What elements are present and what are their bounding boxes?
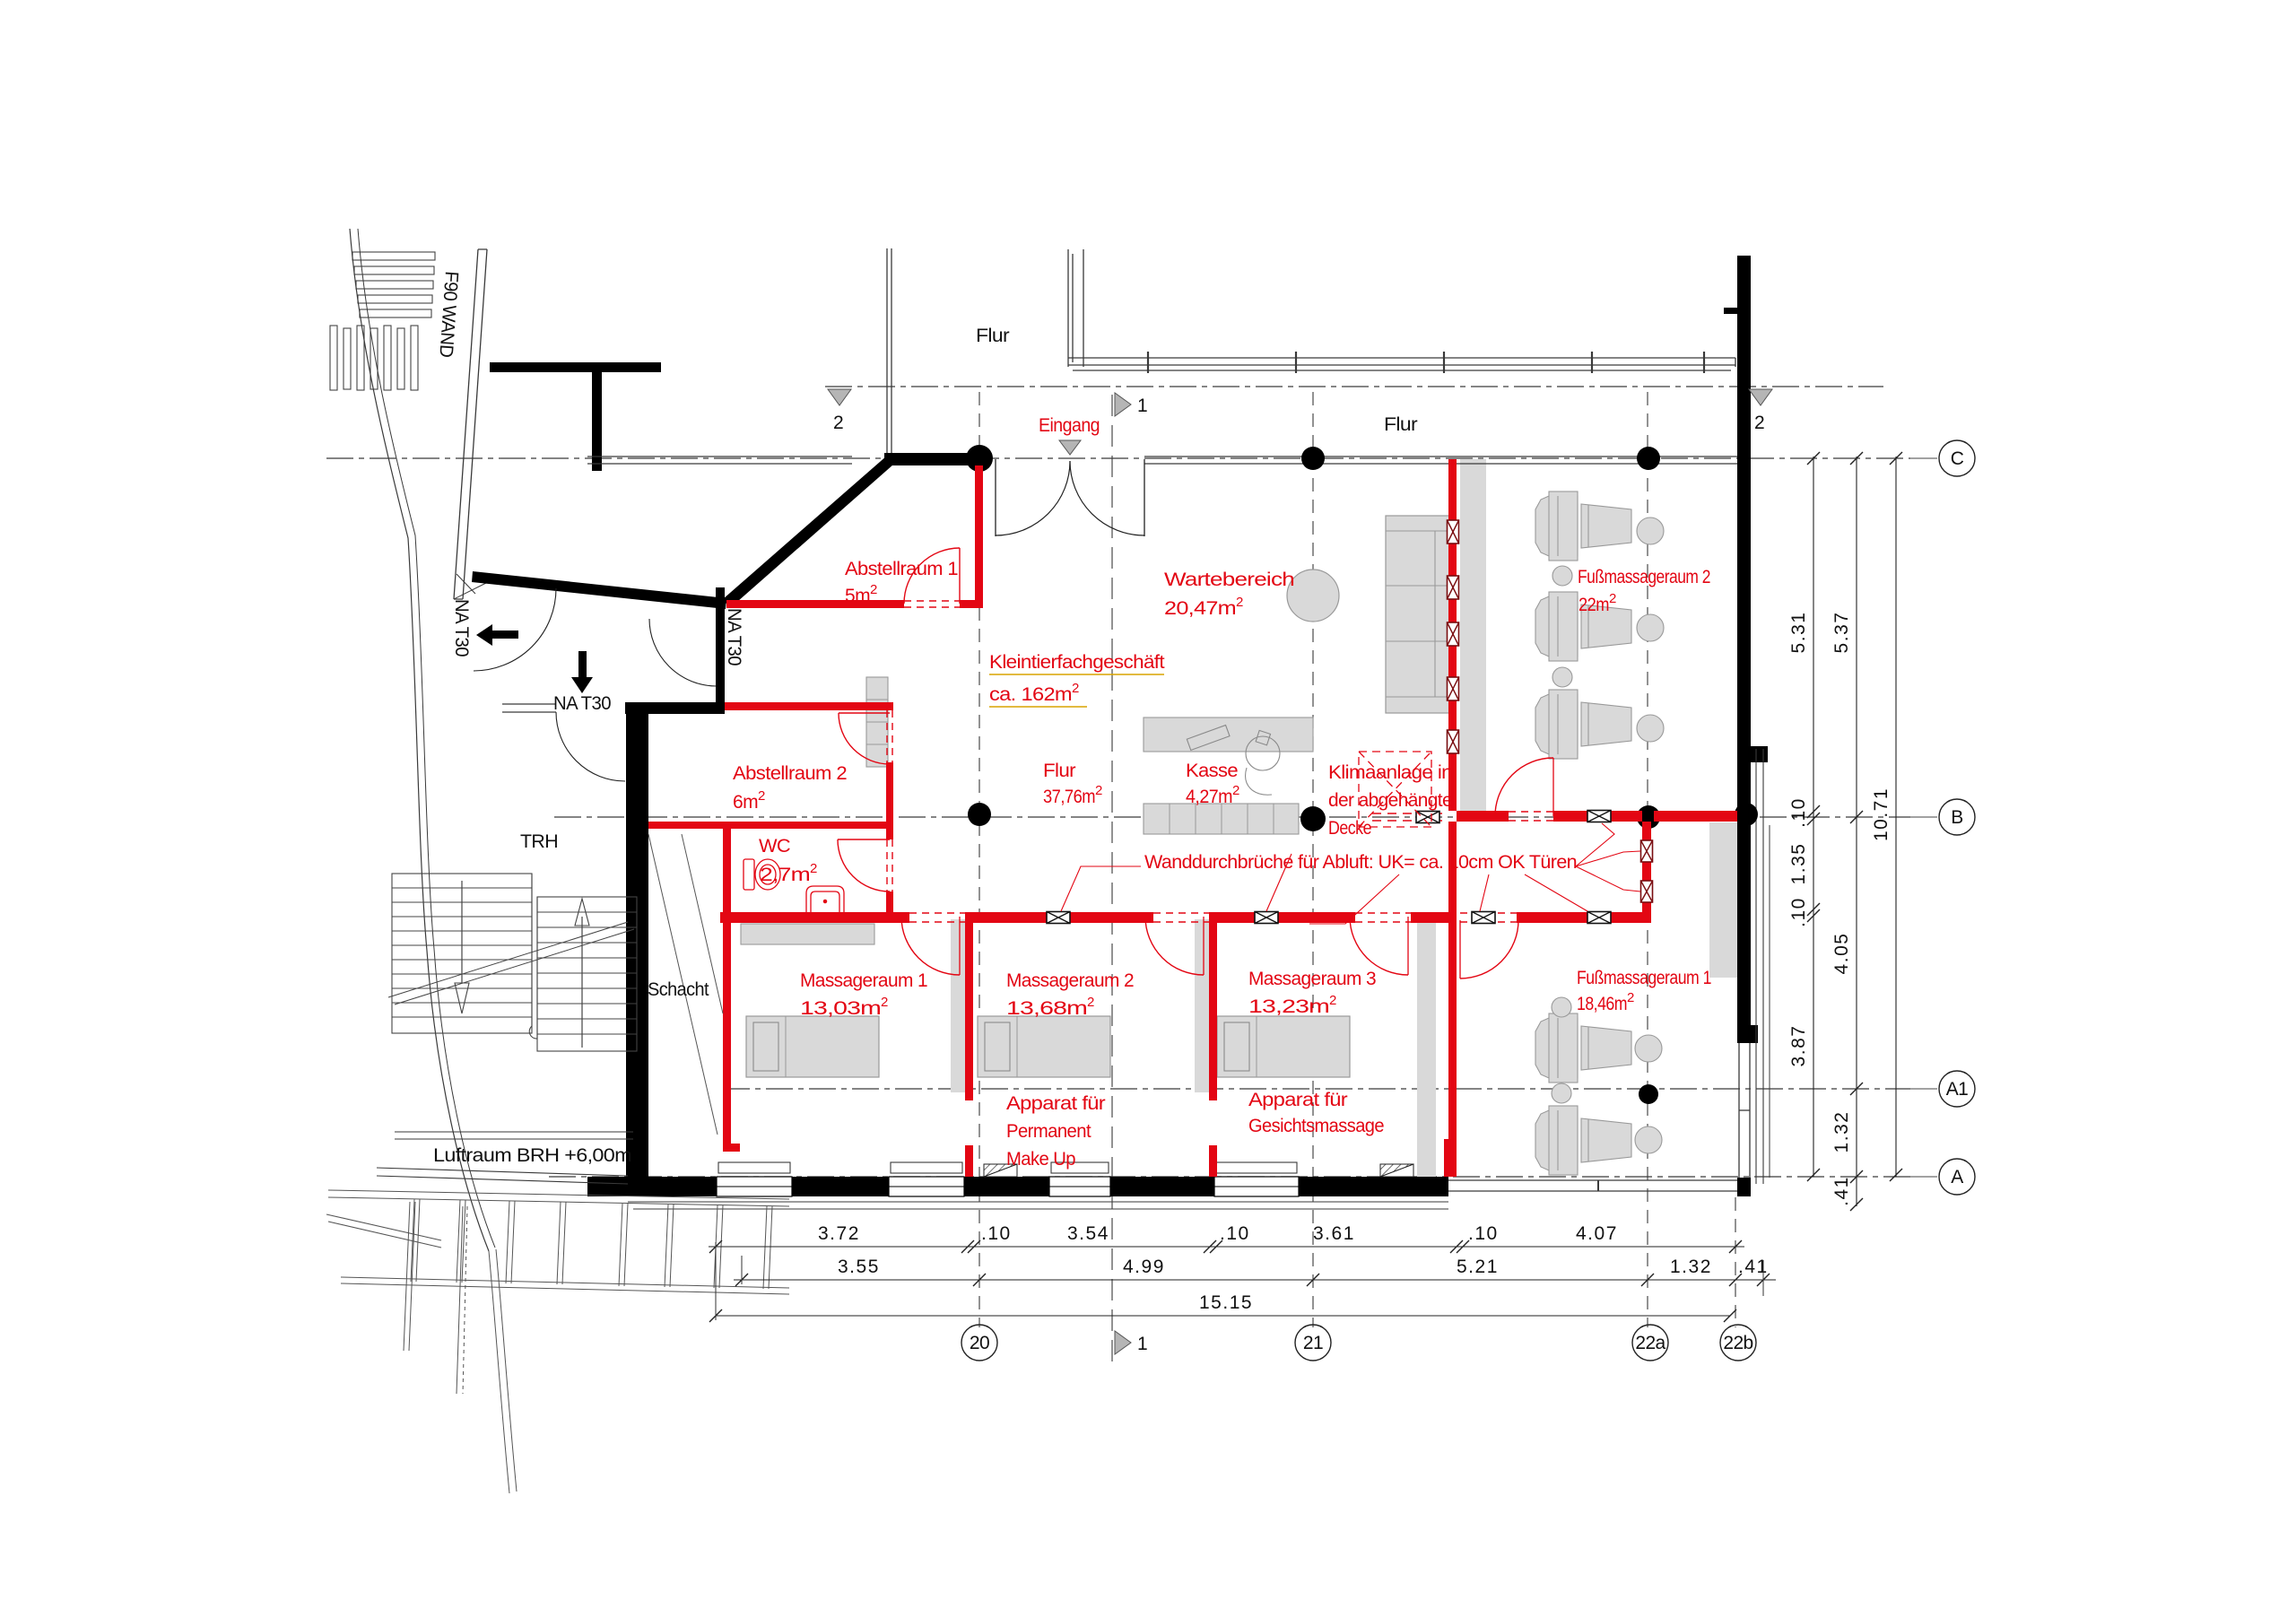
svg-text:21: 21 xyxy=(1303,1333,1323,1353)
svg-text:1: 1 xyxy=(1137,1334,1147,1354)
svg-text:2: 2 xyxy=(1754,413,1764,433)
svg-text:Flur: Flur xyxy=(1384,414,1418,435)
svg-text:4,27m2: 4,27m2 xyxy=(1186,783,1239,807)
svg-text:15.15: 15.15 xyxy=(1199,1292,1253,1313)
svg-text:Wartebereich: Wartebereich xyxy=(1164,570,1294,590)
svg-text:Decke: Decke xyxy=(1328,818,1371,839)
svg-text:C: C xyxy=(1951,448,1964,469)
svg-text:4.99: 4.99 xyxy=(1123,1257,1165,1277)
svg-text:3.72: 3.72 xyxy=(818,1223,860,1244)
svg-text:Flur: Flur xyxy=(1043,761,1076,781)
svg-text:der abgehängte: der abgehängte xyxy=(1328,790,1452,811)
svg-text:Apparat für: Apparat für xyxy=(1006,1093,1106,1114)
svg-text:Apparat für: Apparat für xyxy=(1248,1090,1348,1110)
svg-text:22b: 22b xyxy=(1723,1333,1752,1353)
svg-text:WC: WC xyxy=(759,836,790,857)
svg-text:1: 1 xyxy=(1137,396,1147,416)
svg-text:NA T30: NA T30 xyxy=(451,599,472,657)
svg-text:5.31: 5.31 xyxy=(1788,612,1809,654)
svg-text:37,76m2: 37,76m2 xyxy=(1043,783,1102,807)
svg-text:Kleintierfachgeschäft: Kleintierfachgeschäft xyxy=(989,652,1165,673)
svg-text:TRH: TRH xyxy=(520,831,558,852)
svg-text:2: 2 xyxy=(833,413,843,433)
svg-text:Permanent: Permanent xyxy=(1006,1121,1091,1142)
svg-text:18,46m2: 18,46m2 xyxy=(1577,990,1634,1014)
svg-text:.10: .10 xyxy=(1468,1223,1499,1244)
svg-text:Fußmassageraum 2: Fußmassageraum 2 xyxy=(1578,567,1710,587)
svg-text:A1: A1 xyxy=(1946,1079,1969,1100)
svg-text:4.07: 4.07 xyxy=(1576,1223,1618,1244)
svg-text:NA T30: NA T30 xyxy=(553,693,611,714)
svg-text:Luftraum BRH +6,00m: Luftraum BRH +6,00m xyxy=(433,1145,631,1166)
svg-text:13,23m2: 13,23m2 xyxy=(1248,993,1336,1017)
svg-text:Kasse: Kasse xyxy=(1186,761,1238,781)
svg-text:4.05: 4.05 xyxy=(1831,933,1852,975)
svg-text:1.32: 1.32 xyxy=(1670,1257,1712,1277)
svg-text:Massageraum 3: Massageraum 3 xyxy=(1248,969,1376,989)
svg-text:1.35: 1.35 xyxy=(1788,843,1809,885)
svg-text:2,7m2: 2,7m2 xyxy=(760,861,817,885)
svg-text:1.32: 1.32 xyxy=(1831,1111,1852,1153)
svg-text:Gesichtsmassage: Gesichtsmassage xyxy=(1248,1116,1384,1136)
svg-text:Make Up: Make Up xyxy=(1006,1149,1075,1170)
svg-text:20,47m2: 20,47m2 xyxy=(1164,595,1243,619)
svg-text:Massageraum 2: Massageraum 2 xyxy=(1006,970,1134,991)
svg-text:13,68m2: 13,68m2 xyxy=(1006,995,1094,1019)
svg-text:B: B xyxy=(1951,807,1962,828)
svg-text:Flur: Flur xyxy=(976,326,1010,346)
svg-text:Schacht: Schacht xyxy=(648,979,709,1000)
svg-text:.10: .10 xyxy=(1220,1223,1250,1244)
svg-text:3.54: 3.54 xyxy=(1067,1223,1109,1244)
svg-text:A: A xyxy=(1951,1167,1963,1187)
svg-text:.10: .10 xyxy=(981,1223,1012,1244)
svg-text:3.87: 3.87 xyxy=(1788,1025,1809,1067)
svg-text:Fußmassageraum 1: Fußmassageraum 1 xyxy=(1577,968,1711,988)
svg-text:Abstellraum 2: Abstellraum 2 xyxy=(733,763,847,784)
svg-text:3.55: 3.55 xyxy=(838,1257,880,1277)
svg-text:10.71: 10.71 xyxy=(1871,787,1892,841)
svg-text:Klimaanlage in: Klimaanlage in xyxy=(1328,762,1452,783)
svg-text:5.21: 5.21 xyxy=(1457,1257,1499,1277)
svg-text:Massageraum 1: Massageraum 1 xyxy=(800,970,927,991)
svg-text:.10: .10 xyxy=(1788,797,1809,828)
svg-text:Abstellraum 1: Abstellraum 1 xyxy=(845,559,958,579)
svg-text:.41: .41 xyxy=(1831,1176,1852,1206)
svg-text:.10: .10 xyxy=(1788,897,1809,927)
svg-text:20: 20 xyxy=(970,1333,989,1353)
svg-text:Eingang: Eingang xyxy=(1039,415,1100,436)
svg-text:13,03m2: 13,03m2 xyxy=(800,995,888,1019)
svg-text:.41: .41 xyxy=(1738,1257,1769,1277)
svg-text:5.37: 5.37 xyxy=(1831,612,1852,654)
svg-text:Wanddurchbrüche für Abluft: UK: Wanddurchbrüche für Abluft: UK= ca. 10cm… xyxy=(1144,852,1577,873)
svg-text:22a: 22a xyxy=(1635,1333,1665,1353)
svg-text:3.61: 3.61 xyxy=(1313,1223,1355,1244)
svg-text:ca. 162m2: ca. 162m2 xyxy=(989,681,1079,705)
svg-text:NA T30: NA T30 xyxy=(724,608,744,665)
